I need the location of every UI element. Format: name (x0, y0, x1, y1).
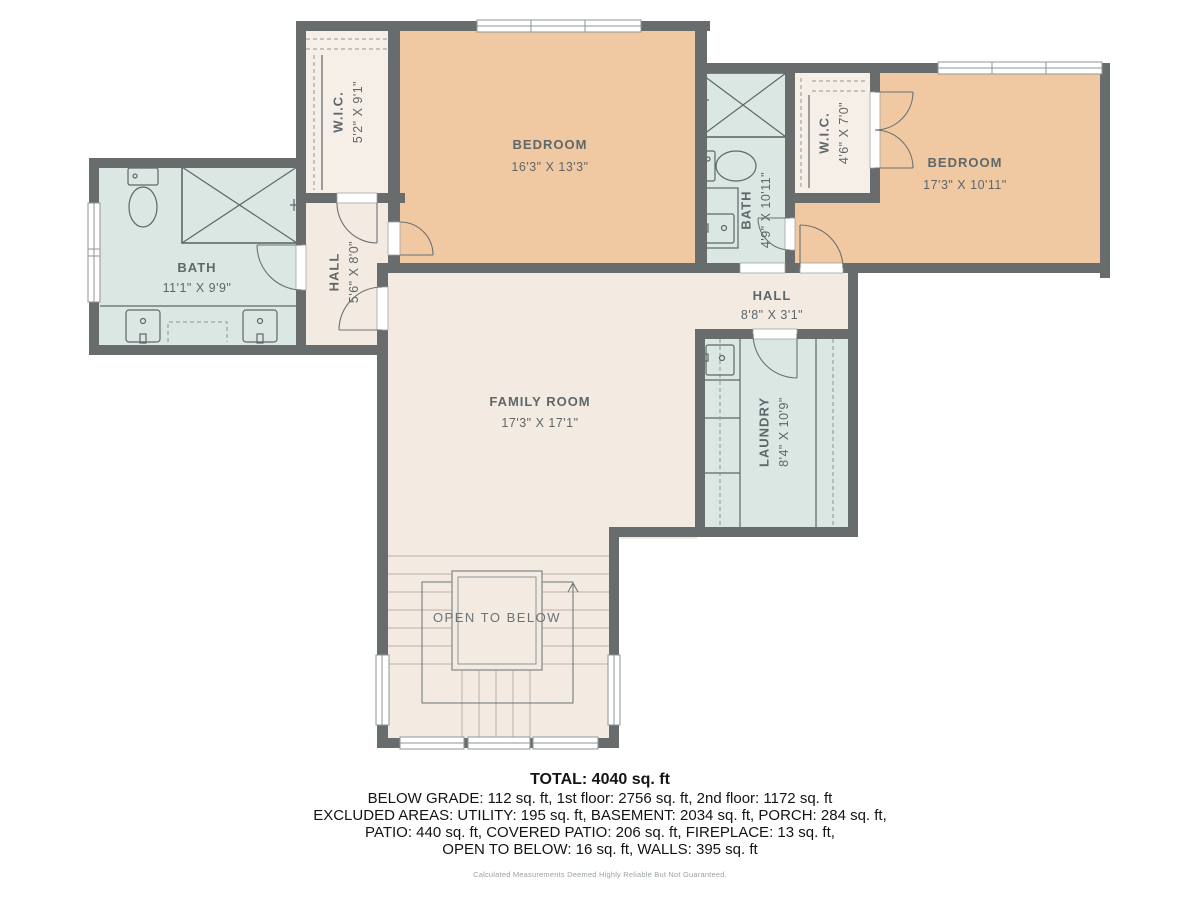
window (376, 655, 389, 725)
hall-2-dims: 8'8" X 3'1" (741, 308, 803, 322)
bath-2-label: BATH (739, 190, 754, 229)
window (400, 737, 464, 749)
window (468, 737, 530, 749)
laundry-label: LAUNDRY (757, 397, 772, 467)
bedroom-1-label: BEDROOM (513, 137, 588, 152)
summary-total: TOTAL: 4040 sq. ft (530, 771, 671, 788)
window (477, 20, 641, 32)
room-wic-1 (304, 29, 392, 195)
hall-1-dims: 5'6" X 8'0" (347, 241, 361, 303)
bedroom-1-dims: 16'3" X 13'3" (511, 160, 588, 174)
family-room-dims: 17'3" X 17'1" (501, 416, 578, 430)
bath-1-dims: 11'1" X 9'9" (163, 281, 232, 295)
room-bath-2 (700, 73, 790, 264)
window (88, 203, 100, 302)
bedroom-2-label: BEDROOM (928, 155, 1003, 170)
window (533, 737, 598, 749)
family-room-label: FAMILY ROOM (489, 394, 590, 409)
wic-1-dims: 5'2" X 9'1" (351, 81, 365, 143)
bath-2-dims: 4'9" X 10'11" (759, 172, 773, 248)
summary-line-2: EXCLUDED AREAS: UTILITY: 195 sq. ft, BAS… (313, 807, 887, 824)
floorplan-page: OPEN TO BELOW (0, 0, 1200, 900)
wic-1-label: W.I.C. (331, 91, 346, 132)
wic-2-dims: 4'6" X 7'0" (837, 102, 851, 164)
summary-line-4: OPEN TO BELOW: 16 sq. ft, WALLS: 395 sq.… (442, 841, 758, 858)
window (608, 655, 620, 725)
hall-2-label: HALL (753, 288, 792, 303)
laundry-dims: 8'4" X 10'9" (777, 397, 791, 467)
summary-line-1: BELOW GRADE: 112 sq. ft, 1st floor: 2756… (368, 790, 834, 807)
room-bath-1 (97, 166, 298, 347)
room-bedroom-2-alcove (795, 203, 885, 264)
bedroom-2-dims: 17'3" X 10'11" (923, 178, 1007, 192)
open-to-below-label: OPEN TO BELOW (433, 610, 561, 625)
summary-line-3: PATIO: 440 sq. ft, COVERED PATIO: 206 sq… (365, 824, 835, 841)
disclaimer-text: Calculated Measurements Deemed Highly Re… (473, 870, 727, 879)
window (938, 62, 1102, 74)
area-summary: TOTAL: 4040 sq. ft BELOW GRADE: 112 sq. … (313, 771, 887, 879)
room-fills (97, 29, 1101, 740)
floorplan-drawing: OPEN TO BELOW (0, 0, 1200, 900)
bath-1-label: BATH (177, 260, 216, 275)
wic-2-label: W.I.C. (817, 112, 832, 153)
hall-1-label: HALL (327, 253, 342, 292)
